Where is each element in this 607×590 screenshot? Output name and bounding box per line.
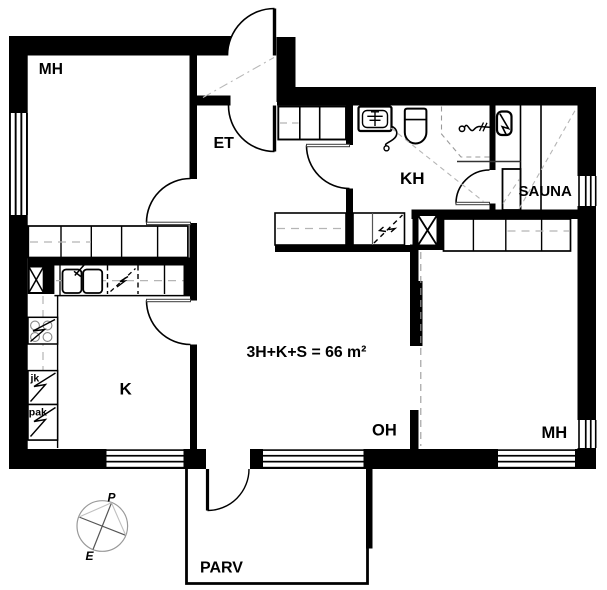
svg-text:jk: jk [30,373,40,385]
svg-text:K: K [120,380,133,399]
svg-text:SAUNA: SAUNA [519,183,573,200]
svg-text:KH: KH [400,169,425,188]
svg-text:ET: ET [214,135,235,152]
svg-text:E: E [86,549,95,563]
svg-text:OH: OH [372,422,397,440]
svg-text:MH: MH [39,61,63,78]
svg-text:3H+K+S = 66 m²: 3H+K+S = 66 m² [247,344,367,361]
svg-text:MH: MH [542,424,568,442]
svg-text:pak: pak [29,407,47,419]
svg-text:PARV: PARV [200,560,243,577]
svg-text:P: P [108,491,117,505]
